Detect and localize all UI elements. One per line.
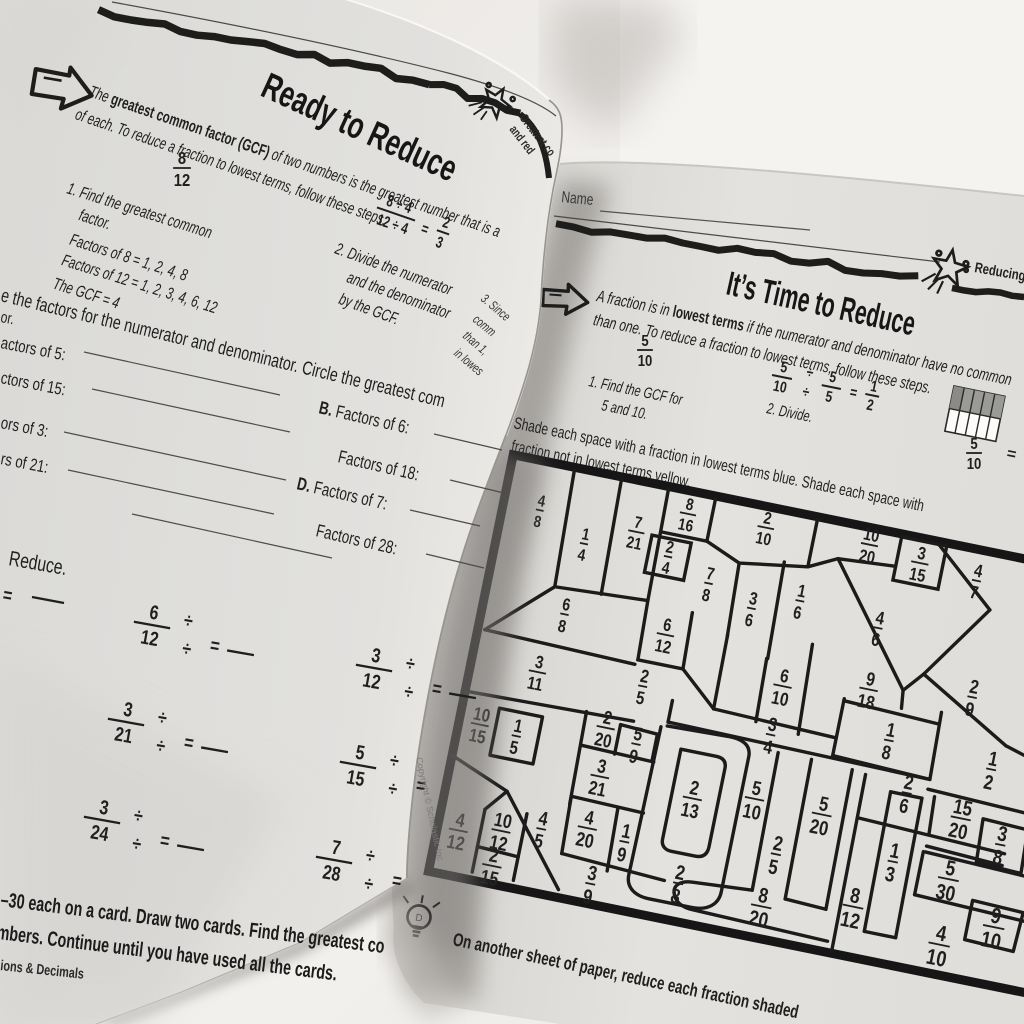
svg-text:5: 5 [641, 333, 648, 350]
svg-text:12: 12 [139, 626, 160, 651]
svg-text:8: 8 [178, 149, 186, 169]
svg-text:15: 15 [345, 766, 366, 791]
svg-text:12: 12 [174, 171, 190, 191]
svg-text:24: 24 [89, 821, 110, 846]
svg-text:5: 5 [970, 436, 977, 453]
svg-text:21: 21 [113, 723, 134, 748]
svg-text:28: 28 [321, 861, 342, 886]
svg-text:10: 10 [967, 456, 982, 473]
svg-text:Name: Name [561, 187, 595, 208]
svg-text:10: 10 [638, 353, 653, 370]
svg-text:12: 12 [361, 669, 382, 694]
